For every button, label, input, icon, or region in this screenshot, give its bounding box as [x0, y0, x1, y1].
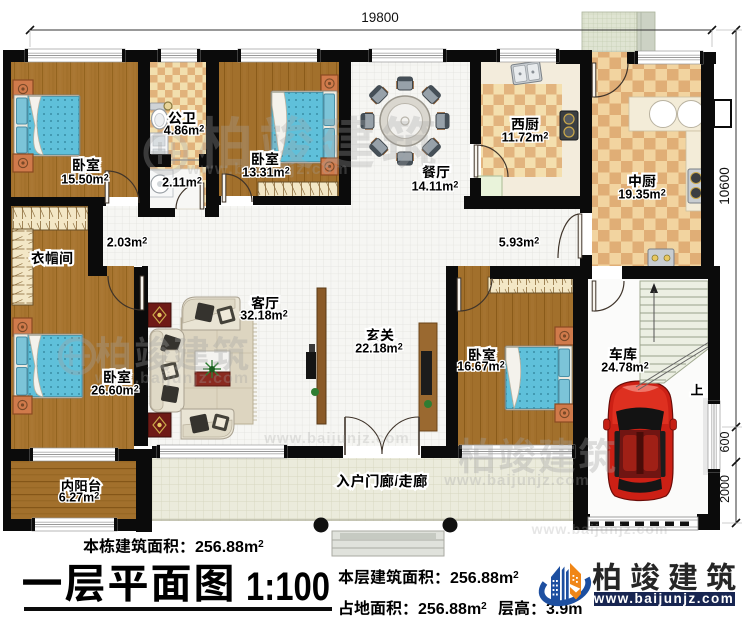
svg-text:6.27m2: 6.27m2	[59, 491, 99, 505]
svg-text:22.18m2: 22.18m2	[355, 342, 402, 356]
svg-text:www.baijunjz.com: www.baijunjz.com	[443, 472, 589, 489]
svg-text:13.31m2: 13.31m2	[242, 166, 289, 180]
svg-text:www.baijunjz.com: www.baijunjz.com	[593, 591, 735, 606]
svg-text:4.86m2: 4.86m2	[164, 124, 204, 138]
svg-text:19.35m2: 19.35m2	[618, 188, 665, 202]
svg-text:26.60m2: 26.60m2	[91, 384, 138, 398]
svg-text:www.baijunjz.com: www.baijunjz.com	[263, 430, 409, 447]
svg-text:2.11m2: 2.11m2	[162, 176, 202, 190]
svg-text:11.72m2: 11.72m2	[502, 131, 549, 145]
svg-text:10600: 10600	[717, 167, 732, 205]
svg-text:2000: 2000	[718, 475, 732, 503]
svg-text:：256.88m2: ：256.88m2	[434, 570, 519, 587]
svg-text:14.11m2: 14.11m2	[412, 180, 459, 194]
svg-text:www.baijunjz.com: www.baijunjz.com	[531, 521, 669, 537]
svg-text:2.03m2: 2.03m2	[107, 236, 147, 250]
svg-text:600: 600	[718, 432, 732, 453]
svg-text:：256.88m2: ：256.88m2	[179, 539, 264, 556]
svg-text:：256.88m2: ：256.88m2	[402, 601, 487, 618]
svg-text:19800: 19800	[361, 10, 399, 25]
svg-text:15.50m2: 15.50m2	[61, 173, 108, 187]
svg-text:1:100: 1:100	[246, 565, 330, 609]
svg-text:24.78m2: 24.78m2	[601, 361, 648, 375]
svg-text:32.18m2: 32.18m2	[240, 309, 287, 323]
svg-text:5.93m2: 5.93m2	[499, 236, 539, 250]
svg-text:16.67m2: 16.67m2	[457, 360, 504, 374]
